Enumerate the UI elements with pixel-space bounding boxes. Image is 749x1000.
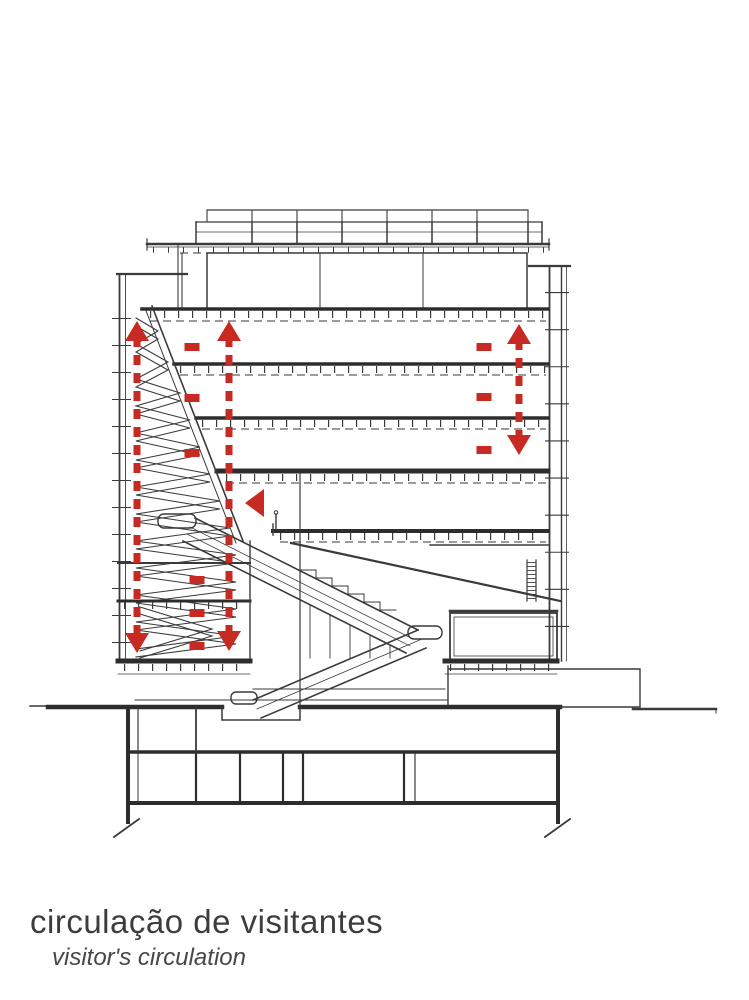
right-lower-room <box>450 611 557 660</box>
page: { "caption": { "title": "circulação de v… <box>0 0 749 1000</box>
circulation-dash <box>477 393 492 401</box>
circulation-arrow <box>507 324 531 455</box>
circulation-arrows <box>125 321 531 653</box>
caption-title: circulação de visitantes <box>30 903 383 941</box>
rooftop-frame <box>147 210 549 253</box>
circulation-dash <box>190 642 205 650</box>
ground-line <box>30 706 716 720</box>
caption-subtitle: visitor's circulation <box>52 944 383 972</box>
circulation-dash <box>185 394 200 402</box>
circulation-dash <box>190 609 205 617</box>
caption: circulação de visitantes visitor's circu… <box>30 903 383 972</box>
circulation-dash <box>477 343 492 351</box>
circulation-dash <box>190 576 205 584</box>
circulation-dash <box>185 449 200 457</box>
escalators <box>135 473 560 718</box>
penthouse <box>178 244 527 309</box>
circulation-dash <box>477 446 492 454</box>
circulation-left-triangle <box>245 489 264 517</box>
underground-structure <box>114 707 570 837</box>
circulation-dash <box>185 343 200 351</box>
building-section-drawing <box>0 0 749 1000</box>
